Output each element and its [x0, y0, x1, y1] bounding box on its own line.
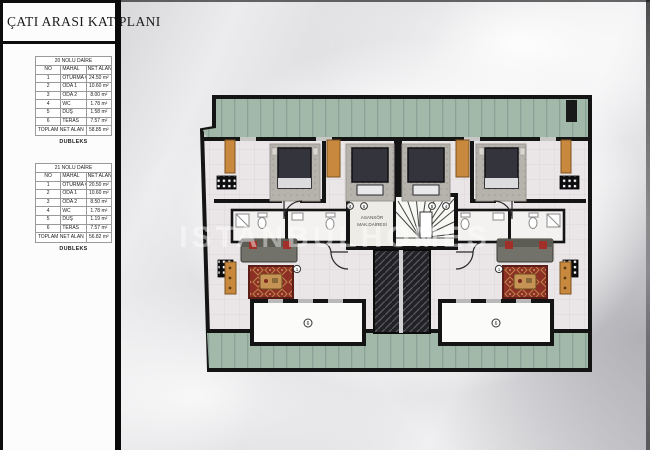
stair-void	[374, 250, 430, 333]
total-label: TOPLAM NET ALAN	[36, 233, 87, 242]
table-caption: DUBLEKS	[35, 246, 112, 252]
bedroom-2	[346, 144, 394, 201]
column-header: NO	[36, 66, 61, 75]
bedroom-1	[270, 144, 320, 201]
table-cell: 24.50 m²	[86, 74, 111, 83]
table-row: 1OTURMA ODASI24.50 m²	[36, 74, 112, 83]
table-cell: 3	[36, 91, 61, 100]
svg-text:5: 5	[431, 204, 434, 209]
chimney	[566, 100, 577, 122]
roof-tag-left: 6	[307, 321, 310, 327]
table-cell: 4	[36, 207, 61, 216]
table-row: 6TERAS7.57 m²	[36, 224, 112, 233]
table-row: 5DUŞ1.58 m²	[36, 108, 112, 117]
screenshot-root: ASANSÖR MAK.DAİRESİ	[0, 0, 650, 450]
table-cell: 1.19 m²	[86, 215, 111, 224]
table-cell: 1.58 m²	[86, 108, 111, 117]
area-table-20: 20 NOLU DAİRENOMAHALNET ALAN1OTURMA ODAS…	[35, 56, 112, 145]
roof-tag-right: 6	[495, 321, 498, 327]
total-label: TOPLAM NET ALAN	[36, 126, 87, 135]
table-cell: 5	[36, 215, 61, 224]
panel-divider	[115, 0, 121, 450]
table-cell: WC	[61, 100, 86, 109]
bedroom-4	[476, 144, 526, 201]
svg-text:5: 5	[363, 204, 366, 209]
table-cell: OTURMA ODASI	[61, 74, 86, 83]
svg-text:4: 4	[445, 204, 448, 209]
column-header: NO	[36, 173, 61, 182]
table-cell: ODA 2	[61, 198, 86, 207]
column-header: MAHAL	[61, 173, 86, 182]
table-cell: TERAS	[61, 224, 86, 233]
table-row: 5DUŞ1.19 m²	[36, 215, 112, 224]
area-table: 21 NOLU DAİRENOMAHALNET ALAN1OTURMA ODAS…	[35, 163, 112, 243]
table-cell: 10.60 m²	[86, 190, 111, 199]
area-table-21: 21 NOLU DAİRENOMAHALNET ALAN1OTURMA ODAS…	[35, 163, 112, 252]
column-header: NET ALAN	[86, 173, 111, 182]
panel-top-border	[0, 0, 115, 3]
machine-room-label-1: ASANSÖR	[361, 214, 384, 220]
table-cell: 3	[36, 198, 61, 207]
area-table: 20 NOLU DAİRENOMAHALNET ALAN1OTURMA ODAS…	[35, 56, 112, 136]
table-cell: ODA 1	[61, 83, 86, 92]
table-cell: 1.78 m²	[86, 100, 111, 109]
table-cell: ODA 2	[61, 91, 86, 100]
table-title: 20 NOLU DAİRE	[36, 57, 112, 66]
table-cell: DUŞ	[61, 108, 86, 117]
column-header: MAHAL	[61, 66, 86, 75]
table-cell: 6	[36, 224, 61, 233]
table-row: 2ODA 110.60 m²	[36, 83, 112, 92]
table-cell: 2	[36, 83, 61, 92]
table-row: 4WC1.78 m²	[36, 207, 112, 216]
table-caption: DUBLEKS	[35, 139, 112, 145]
svg-text:1: 1	[296, 267, 299, 272]
roof-opening-left: 6	[252, 299, 364, 344]
table-cell: OTURMA ODASI	[61, 181, 86, 190]
table-cell: 10.60 m²	[86, 83, 111, 92]
table-row: 2ODA 110.60 m²	[36, 190, 112, 199]
table-cell: 1	[36, 181, 61, 190]
table-cell: ODA 1	[61, 190, 86, 199]
panel-left-border	[0, 0, 3, 450]
table-cell: 1.78 m²	[86, 207, 111, 216]
table-cell: 8.50 m²	[86, 198, 111, 207]
page-title: ÇATI ARASI KAT PLANI	[7, 14, 113, 30]
total-value: 56.82 m²	[86, 233, 111, 242]
table-cell: 4	[36, 100, 61, 109]
table-row: 3ODA 28.00 m²	[36, 91, 112, 100]
svg-text:4: 4	[349, 204, 352, 209]
table-cell: 7.57 m²	[86, 117, 111, 126]
table-row: 1OTURMA ODASI20.50 m²	[36, 181, 112, 190]
table-cell: TERAS	[61, 117, 86, 126]
table-cell: 1	[36, 74, 61, 83]
watermark: ISTANBULHOMES	[179, 221, 490, 254]
roof-opening-right: 6	[440, 299, 552, 344]
title-underline	[0, 41, 115, 44]
bedroom-3	[402, 144, 450, 201]
table-cell: WC	[61, 207, 86, 216]
table-row: 4WC1.78 m²	[36, 100, 112, 109]
table-cell: 8.00 m²	[86, 91, 111, 100]
svg-text:1: 1	[498, 267, 501, 272]
table-row: 3ODA 28.50 m²	[36, 198, 112, 207]
table-cell: 6	[36, 117, 61, 126]
roof-terrace-top	[203, 99, 588, 141]
left-panel: ÇATI ARASI KAT PLANI 20 NOLU DAİRENOMAHA…	[0, 0, 115, 450]
total-value: 58.85 m²	[86, 126, 111, 135]
table-cell: 20.50 m²	[86, 181, 111, 190]
column-header: NET ALAN	[86, 66, 111, 75]
table-title: 21 NOLU DAİRE	[36, 164, 112, 173]
table-row: 6TERAS7.57 m²	[36, 117, 112, 126]
table-cell: DUŞ	[61, 215, 86, 224]
table-cell: 7.57 m²	[86, 224, 111, 233]
table-cell: 2	[36, 190, 61, 199]
table-cell: 5	[36, 108, 61, 117]
